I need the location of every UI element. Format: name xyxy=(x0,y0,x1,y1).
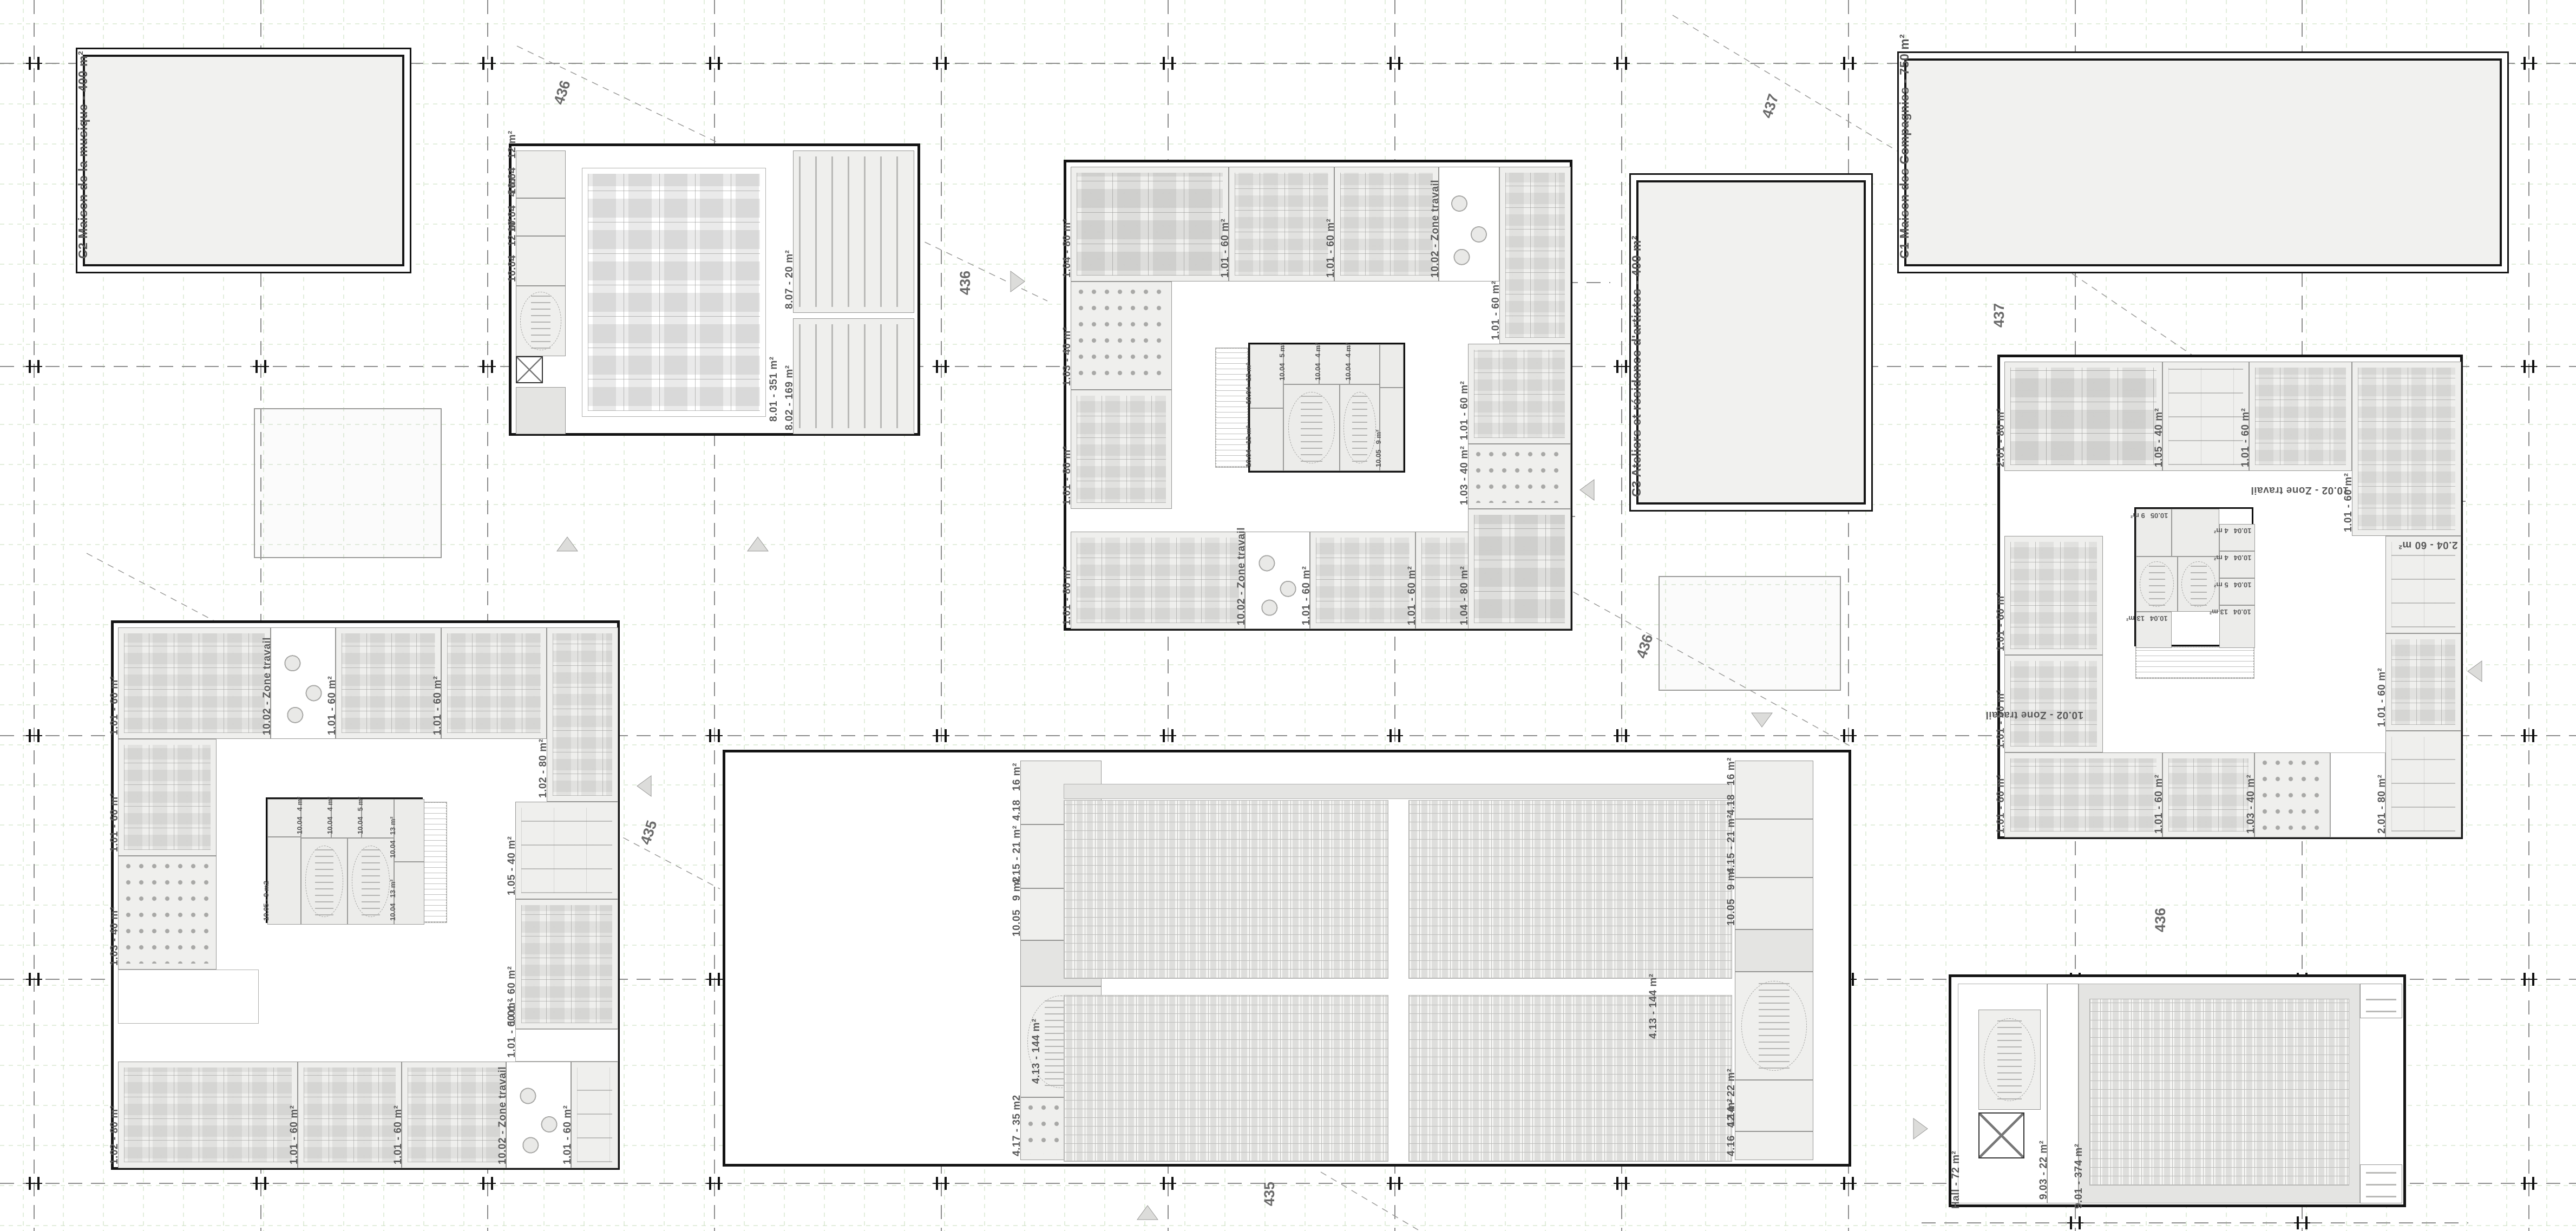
room: 1.01 - 60 m² xyxy=(118,739,217,856)
entrance-triangle-icon xyxy=(748,537,768,551)
room-label: 10.04 13 m² xyxy=(1244,425,1253,467)
area-label: 8.01 - 351 m² xyxy=(768,356,780,422)
room: 2.01 - 80 m² xyxy=(2385,731,2461,837)
tables-furniture-icon xyxy=(2168,368,2243,465)
room: 1.01 - 60 m² xyxy=(118,627,271,739)
c2-maison-musique-label: C2 Maison de la musique - 400 m² xyxy=(76,51,90,259)
floating-label-anchor: 10.02 - Zone travail xyxy=(2081,706,2087,712)
auditorium: 9.03 - 22 m²Hall - 72 m²9.01 - 374 m² xyxy=(1949,974,2406,1207)
floating-label-anchor: 8.01 - 351 m² xyxy=(778,420,783,425)
service-space xyxy=(1735,929,1813,972)
seating-block xyxy=(1408,995,1732,1162)
c1-maison-compagnies-interior: C1 Maison des Compagnies - 750 m² xyxy=(1904,58,2502,266)
tables-furniture-icon xyxy=(2391,737,2455,831)
desks-furniture-icon xyxy=(2010,758,2157,831)
area-label: Hall - 72 m² xyxy=(1950,1151,1962,1209)
axis-number-label: 436 xyxy=(1633,632,1656,660)
room-label: 10.04 12 m² xyxy=(507,218,519,282)
room-label: 1.03 - 40 m² xyxy=(109,907,121,966)
c2-maison-musique-interior: C2 Maison de la musique - 400 m² xyxy=(83,55,404,266)
room: 4.15 - 21 m² xyxy=(1735,819,1813,878)
c2-maison-musique: C2 Maison de la musique - 400 m² xyxy=(76,48,411,273)
entrance-triangle-icon xyxy=(1913,1118,1928,1139)
tables-furniture-icon xyxy=(521,808,612,893)
room: 10.04 12 m² xyxy=(516,150,566,198)
entrance-triangle-icon xyxy=(1580,480,1594,500)
desks-furniture-icon xyxy=(342,633,435,733)
grand-hall: 4.18 16 m²4.15 - 21 m²10.05 9 m24.17 - 3… xyxy=(723,750,1851,1167)
room: 1.01 - 60 m² xyxy=(1499,167,1571,344)
room-label: 10.04 4 m² xyxy=(1314,343,1322,381)
entrance-triangle-icon xyxy=(637,776,651,796)
shelfh-furniture-icon xyxy=(2366,1170,2396,1197)
room: 10.04 4 m² xyxy=(2219,551,2255,578)
service-space xyxy=(2360,984,2402,1018)
library: 10.04 12 m²10.04 4 m²10.04 12 m²8.07 - 2… xyxy=(509,143,920,436)
room: 1.05 - 40 m² xyxy=(2162,362,2249,471)
room: 1.01 - 60 m² xyxy=(515,1029,618,1062)
room: 10.02 - Zone travail xyxy=(506,1062,571,1168)
desks-furniture-icon xyxy=(1077,538,1239,623)
room-label: 1.01 - 60 m² xyxy=(1995,592,2007,652)
service-space xyxy=(2178,556,2219,612)
room-label: 1.01 - 60 m² xyxy=(1220,219,1231,278)
room-label: 1.01 - 60 m² xyxy=(506,999,518,1058)
room-label: 2.01 - 80 m² xyxy=(2376,775,2388,834)
room: 1.01 - 60 m² xyxy=(1334,167,1439,281)
room-label: 4.15 - 21 m² xyxy=(1726,815,1738,874)
c1-maison-compagnies: C1 Maison des Compagnies - 750 m² xyxy=(1897,51,2509,273)
room: 10.02 - Zone travail xyxy=(1245,532,1310,629)
room: 1.01 - 60 m² xyxy=(2004,752,2162,837)
room-label: 1.01 - 60 m² xyxy=(1325,219,1337,278)
room-label: 10.04 5 m² xyxy=(1278,343,1286,381)
room: 1.01 - 60 m² xyxy=(336,627,441,739)
room: 10.05 - 9 m2 xyxy=(267,837,301,925)
c1-maison-compagnies-label: C1 Maison des Compagnies - 750 m² xyxy=(1897,34,1912,259)
room-label: 1.01 - 60 m² xyxy=(2376,668,2388,728)
service-space xyxy=(2135,646,2254,679)
desks-furniture-icon xyxy=(2010,542,2097,649)
room: 10.04 13 m² xyxy=(394,862,424,925)
seat-grid-icon xyxy=(1064,996,1388,1161)
axis-number-label: 436 xyxy=(550,78,573,107)
room: 1.03 - 40 m² xyxy=(118,856,217,970)
room: 1.01 - 60 m² xyxy=(571,1062,618,1168)
desks-furniture-icon xyxy=(1505,173,1565,338)
room: 1.01 - 60 m² xyxy=(2352,362,2461,536)
room-label: 1.01 - 80 m² xyxy=(1061,566,1073,626)
axis-number-label: 436 xyxy=(957,271,973,295)
room: 1.05 - 40 m² xyxy=(515,802,618,899)
c3-ateliers-artistes-interior: C3 Ateliers et résidence d'artistes - 40… xyxy=(1636,180,1866,505)
desks-furniture-icon xyxy=(2010,661,2097,747)
service-space xyxy=(516,356,543,383)
left-building-core: 10.05 - 9 m210.04 4 m²10.04 4 m²10.04 5 … xyxy=(266,797,423,923)
work-furniture-icon xyxy=(1077,173,1223,276)
room: 10.04 4 m² xyxy=(516,198,566,236)
tables-furniture-icon xyxy=(577,1068,612,1162)
room-label: 10.04 5 m² xyxy=(2214,581,2251,589)
room-label: 4.16 12 m² xyxy=(1726,1098,1738,1156)
hatch-furniture-icon xyxy=(1216,348,1248,467)
desks-furniture-icon xyxy=(447,633,541,733)
room: 1.04 - 80 m² xyxy=(1468,509,1571,629)
room-label: 10.04 13 m² xyxy=(2126,614,2168,623)
desks-furniture-icon xyxy=(124,745,211,850)
room-label: 1.03 - 40 m² xyxy=(1459,446,1471,506)
work-furniture-icon xyxy=(2010,368,2157,465)
room-label: 1.04 - 80 m² xyxy=(1459,566,1471,626)
right-building-core: 10.05 9 m²10.04 4 m²10.04 4 m²10.04 5 m²… xyxy=(2134,507,2253,646)
desks-furniture-icon xyxy=(2168,758,2249,831)
room-label: 4.17 - 35 m2 xyxy=(1011,1095,1023,1156)
area-label: 9.01 - 374 m² xyxy=(2073,1143,2085,1209)
room: 1.01 - 60 m² xyxy=(1229,167,1334,281)
room-label: 1.01 - 60 m² xyxy=(2240,408,2252,468)
room: 2.04 - 60 m² xyxy=(2385,536,2461,633)
room: 1.01 - 60 m² xyxy=(2162,752,2254,837)
service-space xyxy=(582,168,766,417)
room: 10.04 4 m² xyxy=(1349,344,1380,384)
room-label: 4.18 16 m² xyxy=(1011,763,1023,821)
right-building: 2.01 - 80 m²1.05 - 40 m²1.01 - 60 m²1.01… xyxy=(1997,355,2463,839)
entrance-triangle-icon xyxy=(1137,1206,1158,1220)
central-building: 1.04 - 80 m²1.01 - 60 m²1.01 - 60 m²10.0… xyxy=(1064,160,1572,631)
room-label: 9.03 - 22 m² xyxy=(2038,1141,2050,1200)
room-label: 10.04 13 m² xyxy=(1244,363,1253,404)
shelfv-furniture-icon xyxy=(799,156,908,307)
room-label: 10.04 4 m² xyxy=(2214,527,2251,535)
service-space xyxy=(301,838,348,925)
room: 1.02 - 80 m² xyxy=(118,1062,298,1168)
axis-number-label: 437 xyxy=(1991,303,2007,328)
room: 4.14 - 22 m² xyxy=(1735,1080,1813,1131)
seating-block xyxy=(1064,995,1388,1162)
seat-grid-icon xyxy=(1409,801,1732,978)
desks-furniture-icon xyxy=(553,633,612,796)
desks-furniture-icon xyxy=(1235,173,1328,276)
desks-furniture-icon xyxy=(408,1068,500,1162)
room: 1.01 - 60 m² xyxy=(298,1062,402,1168)
room-label: 1.02 - 80 m² xyxy=(538,739,549,798)
hatch-furniture-icon xyxy=(2136,647,2254,678)
room-label: 10.05 9 m2 xyxy=(1011,876,1023,937)
room: 1.02 - 80 m² xyxy=(547,627,618,802)
service-space xyxy=(348,838,394,925)
room: 10.04 13 m² xyxy=(1250,408,1283,471)
room: 10.04 13 m² xyxy=(2219,605,2255,648)
room-label: 10.04 4 m² xyxy=(1344,343,1352,381)
room-label: 1.02 - 80 m² xyxy=(109,1105,121,1165)
desks-furniture-icon xyxy=(2391,639,2455,725)
room-label: 1.01 - 60 m² xyxy=(392,1105,404,1165)
chairs-furniture-icon xyxy=(2260,758,2324,831)
room-label: 1.01 - 60 m² xyxy=(1406,566,1418,626)
service-space xyxy=(1978,1010,2041,1110)
room: 10.02 - Zone travail xyxy=(271,627,336,739)
axis-number-label: 436 xyxy=(2152,908,2168,932)
room-label: 10.05 - 9 m2 xyxy=(262,881,270,921)
desks-furniture-icon xyxy=(2358,368,2455,530)
room: 8.02 - 169 m² xyxy=(793,318,914,434)
entrance-triangle-icon xyxy=(2468,661,2482,682)
room: 10.05 9 m² xyxy=(1380,388,1404,471)
site-plan-canvas: 436436437437436435436435 C2 Maison de la… xyxy=(0,0,2576,1231)
room-label: 10.04 4 m² xyxy=(296,797,304,834)
service-space xyxy=(1215,348,1248,468)
room-label: 1.01 - 60 m² xyxy=(109,676,121,736)
axis-number-label: 435 xyxy=(1261,1182,1277,1206)
round-furniture-icon xyxy=(1445,173,1493,276)
room: 1.01 - 60 m² xyxy=(1310,532,1415,629)
room-label: 10.04 4 m² xyxy=(2214,554,2251,562)
desks-furniture-icon xyxy=(124,1068,292,1162)
room-label: 1.01 - 80 m² xyxy=(1061,446,1073,506)
room-label: 10.05 9 m² xyxy=(2131,512,2168,520)
c3-ateliers-artistes-label: C3 Ateliers et résidence d'artistes - 40… xyxy=(1629,235,1644,497)
room-label: 1.01 - 60 m² xyxy=(109,793,121,853)
room-label: 1.01 - 60 m² xyxy=(326,676,338,736)
shelfv-furniture-icon xyxy=(799,324,908,428)
entrance-triangle-icon xyxy=(1752,713,1772,727)
room: 1.01 - 60 m² xyxy=(441,627,547,739)
room-label: 10.04 13 m² xyxy=(389,879,397,921)
room-label: 2.01 - 80 m² xyxy=(1995,408,2007,468)
room-label: 1.01 - 60 m² xyxy=(2343,473,2355,533)
tables-furniture-icon xyxy=(2391,542,2455,627)
room-label: 1.01 - 60 m² xyxy=(1459,381,1471,441)
left-building: 1.01 - 60 m²10.02 - Zone travail1.01 - 6… xyxy=(111,620,620,1170)
axis-number-label: 437 xyxy=(1759,92,1781,120)
c3-ateliers-artistes: C3 Ateliers et résidence d'artistes - 40… xyxy=(1629,173,1873,512)
service-space xyxy=(2136,556,2178,612)
service-space xyxy=(1380,344,1404,388)
room-label: 10.02 - Zone travail xyxy=(497,1066,509,1164)
room-label: 1.04 - 80 m² xyxy=(1061,219,1073,278)
area-label: 4.13 - 144 m² xyxy=(1648,973,1660,1039)
room: 10.02 - Zone travail xyxy=(1439,167,1499,281)
round-furniture-icon xyxy=(1251,538,1304,623)
seat-grid-icon xyxy=(1064,801,1388,978)
seating-block xyxy=(1408,800,1732,979)
seating-block xyxy=(2089,999,2349,1186)
room: 1.01 - 60 m² xyxy=(2004,536,2103,655)
room-label: 8.02 - 169 m² xyxy=(784,365,796,430)
room: 10.04 4 m² xyxy=(2219,524,2255,551)
service-space xyxy=(1283,384,1340,471)
room-label: 1.03 - 40 m² xyxy=(1061,327,1073,387)
room: 10.04 12 m² xyxy=(516,236,566,286)
service-space xyxy=(118,970,259,1024)
entrance-triangle-icon xyxy=(557,537,578,551)
floating-label-anchor: Hall - 72 m² xyxy=(1960,1207,1965,1212)
room-label: 10.04 5 m² xyxy=(356,797,364,834)
service-space xyxy=(2360,1164,2402,1203)
room-label: 10.04 4 m² xyxy=(326,797,334,834)
room: 1.03 - 40 m² xyxy=(2254,752,2330,837)
room: 1.01 - 60 m² xyxy=(1468,344,1571,444)
room-label: 1.01 - 60 m² xyxy=(1995,775,2007,834)
work-furniture-icon xyxy=(588,174,760,411)
room: 1.04 - 80 m² xyxy=(1071,167,1229,281)
room-label: 1.01 - 60 m² xyxy=(562,1105,574,1165)
room-label: 10.02 - Zone travail xyxy=(1236,527,1248,625)
room: 10.05 9 m² xyxy=(2136,509,2172,556)
room-label: 1.01 - 60 m² xyxy=(289,1105,300,1165)
seat-grid-icon xyxy=(1409,996,1732,1161)
room-label: 4.18 16 m² xyxy=(1726,757,1738,815)
room-label: 1.03 - 40 m² xyxy=(2245,775,2257,834)
service-space xyxy=(1064,784,1732,799)
room: 10.05 9 m² xyxy=(1735,878,1813,929)
desks-furniture-icon xyxy=(521,905,612,1023)
room: 2.01 - 80 m² xyxy=(2004,362,2162,471)
desks-furniture-icon xyxy=(304,1068,396,1162)
floating-label-anchor: 4.13 - 144 m² xyxy=(1657,1037,1663,1042)
service-space xyxy=(2172,509,2219,556)
room: 10.04 13 m² xyxy=(394,799,424,862)
central-building-core: 10.04 13 m²10.04 13 m²10.04 5 m²10.04 4 … xyxy=(1248,343,1405,473)
room: 1.01 - 60 m² xyxy=(2249,362,2352,471)
room-label: 1.05 - 40 m² xyxy=(506,836,518,896)
service-space xyxy=(1978,1112,2024,1158)
room-label: 10.04 13 m² xyxy=(2210,608,2251,616)
room: 1.01 - 60 m² xyxy=(2004,655,2103,752)
shelfh-furniture-icon xyxy=(2366,990,2396,1012)
axis-number-label: 435 xyxy=(637,819,660,847)
service-space xyxy=(516,387,566,434)
room: 4.16 12 m² xyxy=(1735,1131,1813,1160)
floating-label-anchor: 9.01 - 374 m² xyxy=(2083,1207,2088,1212)
room: 10.04 5 m² xyxy=(2219,578,2255,605)
room-label: 1.05 - 40 m² xyxy=(2153,408,2165,468)
room-label: 10.04 13 m² xyxy=(389,816,397,858)
round-furniture-icon xyxy=(512,1068,565,1162)
service-space xyxy=(516,286,566,356)
chairs-furniture-icon xyxy=(1474,450,1565,503)
seating-block xyxy=(1064,800,1388,979)
room-label: 10.05 9 m² xyxy=(1726,868,1738,926)
room-label: 1.01 - 60 m² xyxy=(1301,566,1313,626)
room: 4.18 16 m² xyxy=(1735,761,1813,819)
room: 10.04 13 m² xyxy=(2136,612,2172,648)
desks-furniture-icon xyxy=(124,633,265,733)
service-space xyxy=(1340,384,1380,471)
area-label: 10.02 - Zone travail xyxy=(2251,484,2349,496)
chairs-furniture-icon xyxy=(124,862,211,964)
service-space xyxy=(1735,972,1813,1080)
room-label: 10.02 - Zone travail xyxy=(261,637,273,735)
room-label: 2.04 - 60 m² xyxy=(2398,539,2458,551)
area-label: 4.13 - 144 m² xyxy=(1031,1018,1043,1084)
room-label: 8.07 - 20 m² xyxy=(784,250,796,310)
room: 1.01 - 60 m² xyxy=(515,899,618,1029)
room: 1.01 - 60 m² xyxy=(2385,633,2461,731)
desks-furniture-icon xyxy=(1340,173,1433,276)
room-label: 1.01 - 60 m² xyxy=(432,676,444,736)
desks-furniture-icon xyxy=(2255,368,2346,465)
room: 1.01 - 60 m² xyxy=(402,1062,506,1168)
area-label: 10.02 - Zone travail xyxy=(1985,709,2083,721)
round-furniture-icon xyxy=(277,633,330,733)
room-label: 10.02 - Zone travail xyxy=(1430,180,1441,278)
room-label: 10.05 9 m² xyxy=(1374,430,1382,467)
desks-furniture-icon xyxy=(1077,396,1166,503)
seat-grid-icon xyxy=(2090,999,2349,1185)
desks-furniture-icon xyxy=(1474,350,1565,438)
desks-furniture-icon xyxy=(1316,538,1410,623)
room: 1.01 - 80 m² xyxy=(1071,390,1172,509)
room-label: 1.01 - 60 m² xyxy=(1490,281,1502,341)
room: 1.01 - 80 m² xyxy=(1071,532,1245,629)
floating-label-anchor: 4.13 - 144 m² xyxy=(1040,1082,1046,1087)
room-label: 1.01 - 60 m² xyxy=(2153,775,2165,834)
room: 1.03 - 40 m² xyxy=(1071,281,1172,390)
room: 8.07 - 20 m² xyxy=(793,150,914,313)
chairs-furniture-icon xyxy=(1077,287,1166,384)
room-label: 4.15 - 21 m² xyxy=(1011,826,1023,885)
work-furniture-icon xyxy=(1474,515,1565,623)
room: 1.03 - 40 m² xyxy=(1468,444,1571,509)
